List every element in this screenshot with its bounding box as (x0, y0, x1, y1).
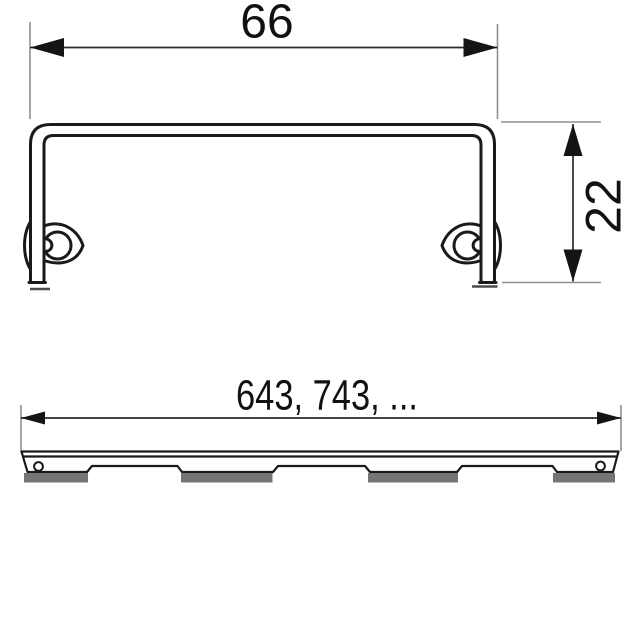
left-clip-eye-inner (44, 239, 52, 252)
right-fixing-hole (596, 462, 605, 471)
left-fixing-hole (34, 462, 43, 471)
technical-drawing-canvas: 66 (0, 0, 641, 641)
support-foot-1 (24, 473, 88, 483)
support-foot-3 (368, 473, 458, 483)
width-dimension-label: 66 (240, 0, 293, 49)
length-dimension-label: 643, 743, ... (236, 372, 418, 420)
drawing-background (0, 0, 641, 641)
outer-contour (31, 125, 495, 283)
right-clip-eye-inner (473, 239, 481, 252)
frame-profile (29, 125, 496, 283)
height-dimension-label: 22 (576, 178, 632, 234)
support-foot-2 (181, 473, 273, 483)
support-foot-4 (553, 473, 615, 483)
